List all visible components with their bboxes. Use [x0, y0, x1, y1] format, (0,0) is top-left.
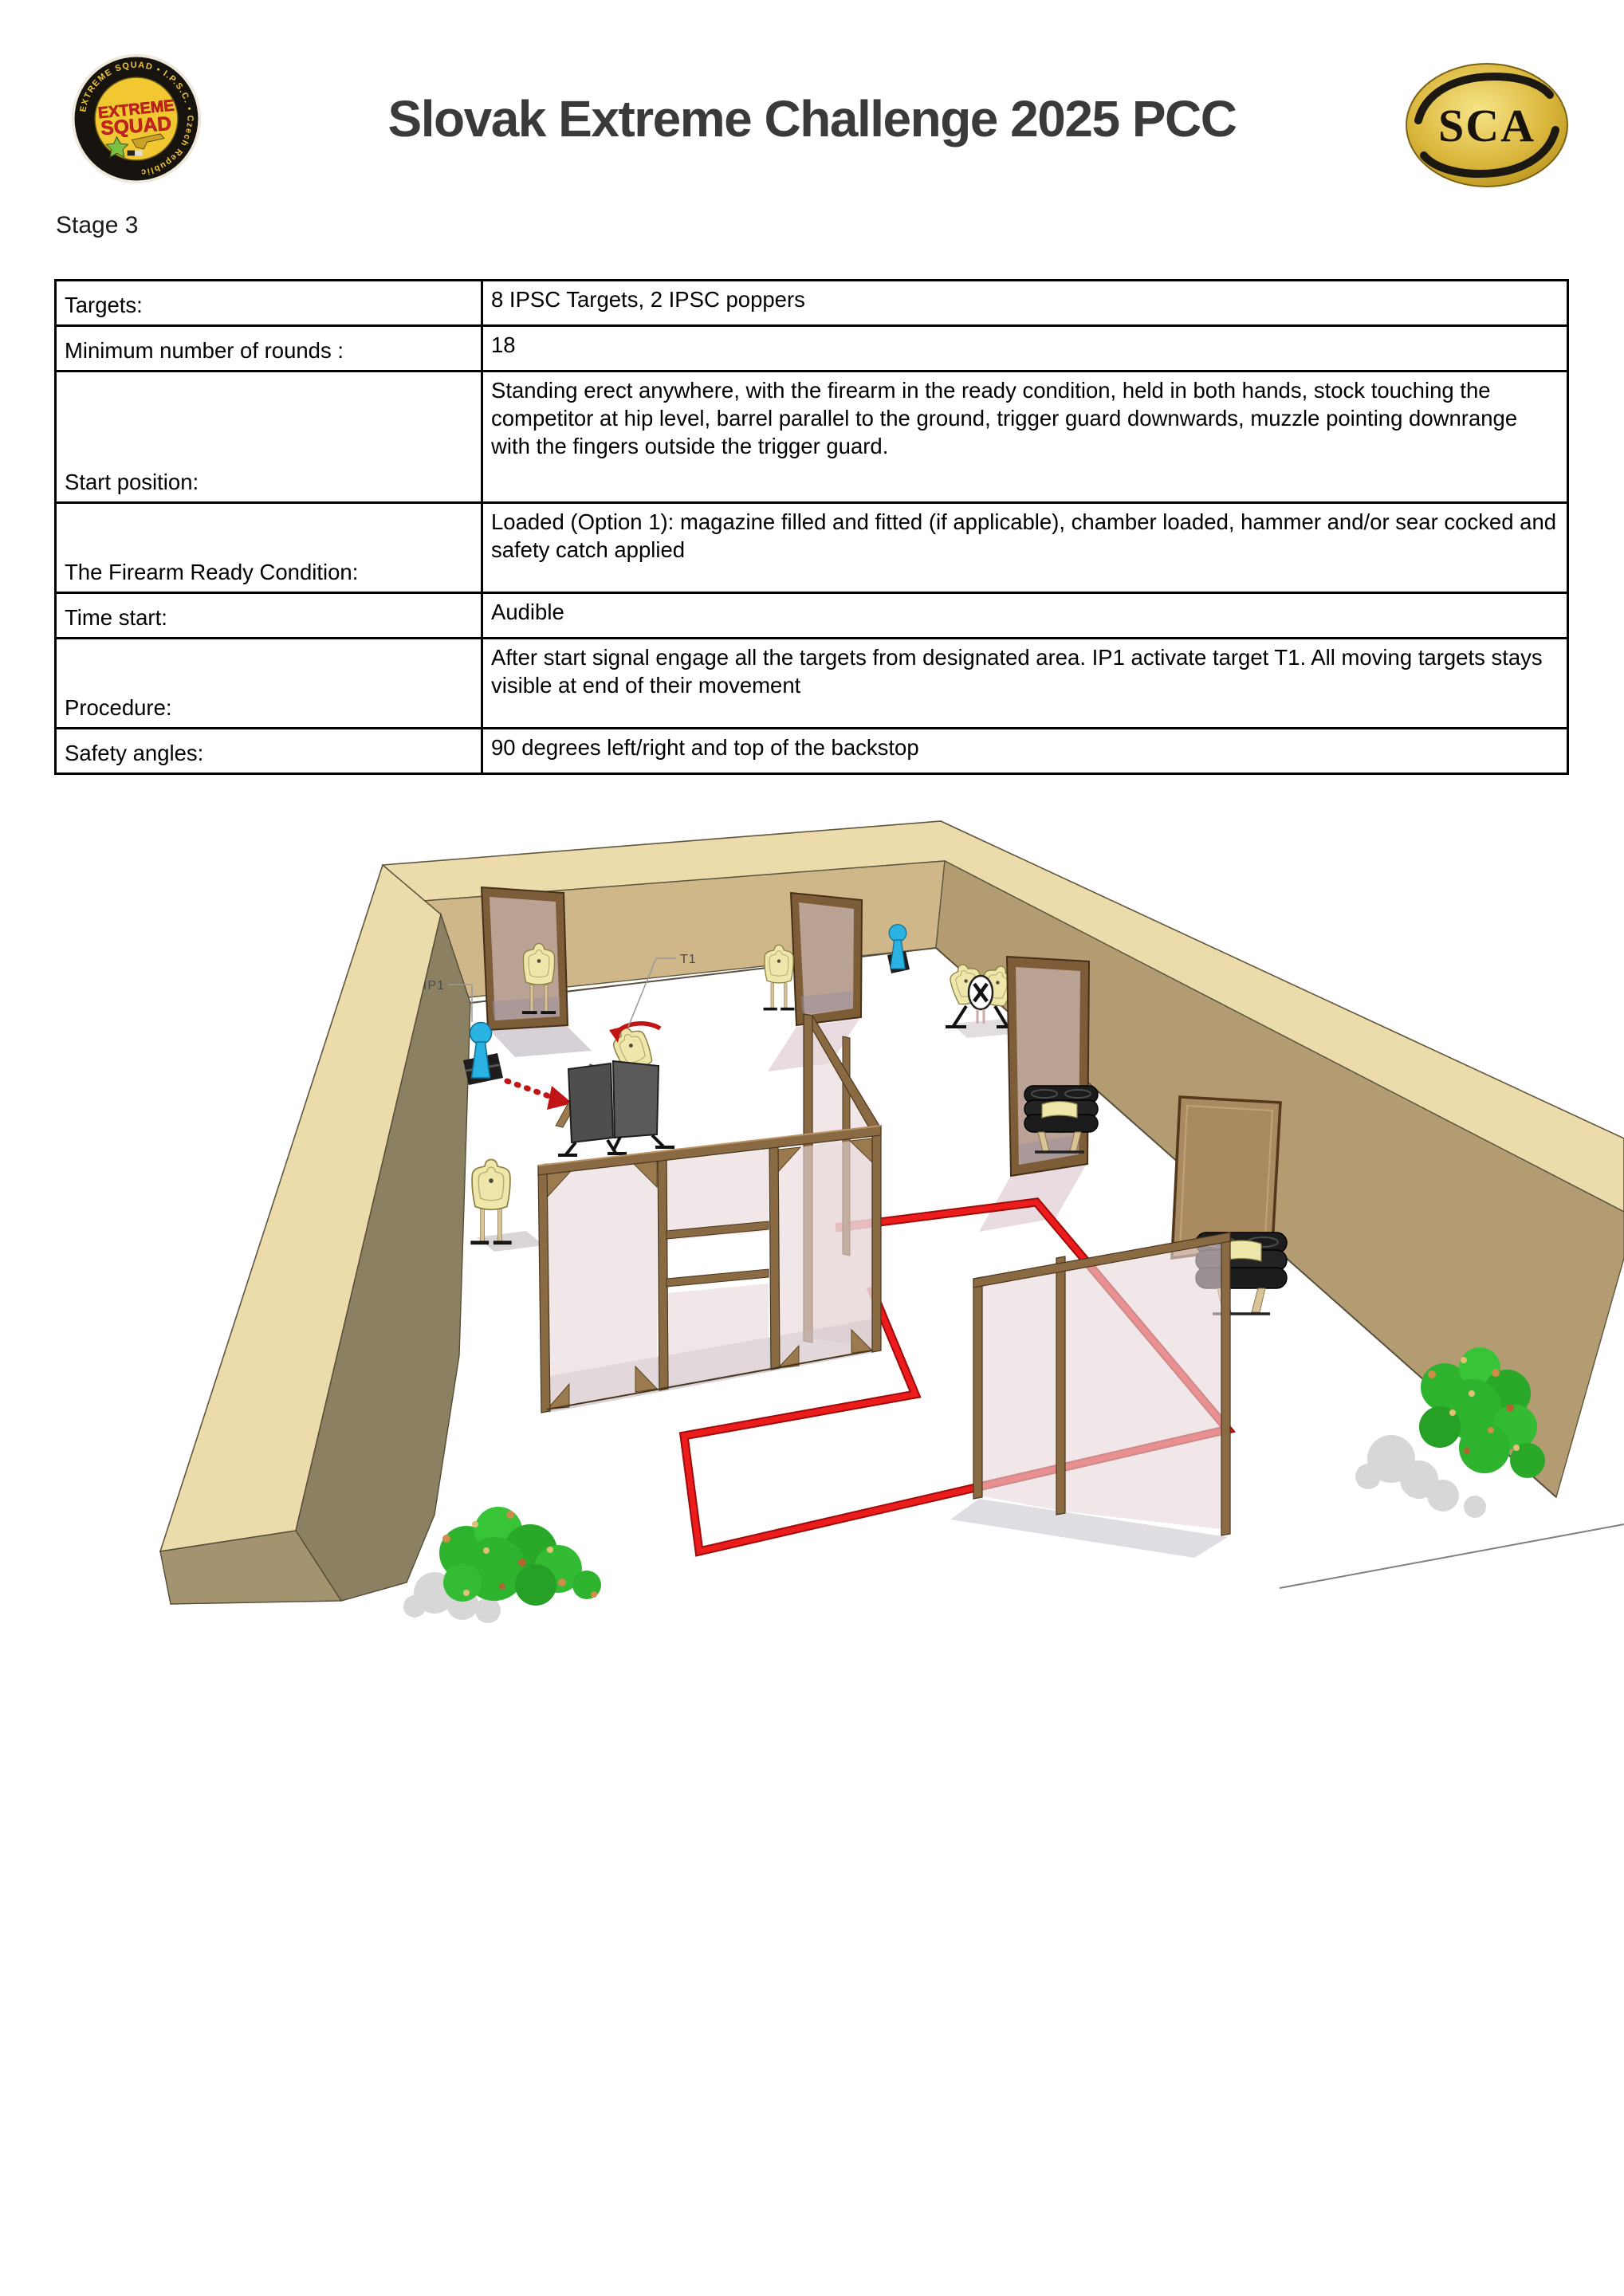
row-value: 8 IPSC Targets, 2 IPSC poppers: [482, 281, 1568, 326]
ground-edge-line: [1280, 1524, 1624, 1588]
badge-check-dark: [128, 151, 135, 156]
extreme-squad-logo: EXTREME SQUAD • I.P.S.C. • Czech Republi…: [69, 51, 204, 187]
wood-post: [769, 1140, 780, 1370]
flower-dot: [463, 1590, 470, 1596]
stage-diagram: IP1 T1: [0, 804, 1624, 1736]
row-value: After start signal engage all the target…: [482, 639, 1568, 729]
wood-post: [973, 1277, 982, 1499]
target-left-standalone: [470, 1160, 511, 1245]
t1-label: T1: [680, 953, 697, 966]
bush-right: [1355, 1347, 1545, 1518]
row-value: 90 degrees left/right and top of the bac…: [482, 729, 1568, 774]
row-label: The Firearm Ready Condition:: [56, 503, 482, 593]
stage-label: Stage 3: [56, 212, 138, 239]
bush-bottom-left: [403, 1507, 601, 1623]
barricade-panel-left: [568, 1063, 613, 1142]
sca-logo-icon: SCA: [1402, 61, 1572, 190]
table-row: Safety angles: 90 degrees left/right and…: [56, 729, 1568, 774]
window-rail: [667, 1269, 769, 1287]
flower-dot: [1449, 1409, 1456, 1416]
mesh-panel: [978, 1264, 1056, 1510]
row-value: Standing erect anywhere, with the firear…: [482, 372, 1568, 503]
door-frame-mesh: [1016, 967, 1080, 1165]
bush-foliage: [439, 1507, 601, 1606]
wood-post: [658, 1151, 668, 1390]
flower-dot: [472, 1521, 478, 1527]
row-value: Audible: [482, 593, 1568, 639]
barricade-leg: [652, 1135, 663, 1146]
mesh-panel: [667, 1284, 769, 1386]
table-row: Procedure: After start signal engage all…: [56, 639, 1568, 729]
barricade-leg: [566, 1142, 576, 1154]
row-label: Time start:: [56, 593, 482, 639]
extreme-squad-badge-icon: EXTREME SQUAD • I.P.S.C. • Czech Republi…: [69, 51, 204, 187]
barricade: [558, 1061, 674, 1155]
wood-post: [1056, 1256, 1065, 1515]
dashed-arrow-line: [507, 1081, 553, 1098]
table-row: The Firearm Ready Condition: Loaded (Opt…: [56, 503, 1568, 593]
target-front-frame2: [764, 945, 795, 1010]
stage-briefing-page: EXTREME SQUAD • I.P.S.C. • Czech Republi…: [0, 0, 1624, 2296]
shadow-blob: [1464, 1496, 1486, 1518]
flower-dot: [442, 1535, 450, 1543]
flower-dot: [483, 1547, 490, 1554]
barricade-leg: [614, 1137, 620, 1150]
target-stand: [764, 984, 795, 1011]
shadow-blob: [403, 1595, 426, 1618]
target-stand-leg: [1252, 1288, 1265, 1312]
wood-post: [872, 1126, 881, 1352]
range-3d-view: IP1 T1: [0, 804, 1624, 1736]
popper-icon: [470, 1023, 492, 1079]
flower-dot: [558, 1578, 566, 1586]
shadow-frame1: [490, 1025, 592, 1057]
row-value: 18: [482, 326, 1568, 372]
row-label: Safety angles:: [56, 729, 482, 774]
flower-dot: [547, 1547, 553, 1553]
shadow-blob: [1355, 1464, 1381, 1489]
flower-dot: [1461, 1357, 1467, 1363]
right-wall-structure: [950, 1233, 1230, 1558]
flower-dot: [1492, 1369, 1500, 1377]
flower-dot: [1506, 1404, 1514, 1412]
table-row: Start position: Standing erect anywhere,…: [56, 372, 1568, 503]
badge-check-light: [135, 151, 142, 156]
foliage-blob: [1459, 1422, 1510, 1473]
row-label: Minimum number of rounds :: [56, 326, 482, 372]
shadow-blob: [1427, 1480, 1459, 1512]
row-label: Targets:: [56, 281, 482, 326]
activation-arrow: [507, 1081, 572, 1110]
table-row: Minimum number of rounds : 18: [56, 326, 1568, 372]
flower-dot: [1469, 1390, 1475, 1397]
flower-dot: [499, 1583, 505, 1590]
shadow-blob: [475, 1598, 501, 1623]
row-value: Loaded (Option 1): magazine filled and f…: [482, 503, 1568, 593]
flower-dot: [591, 1591, 597, 1598]
row-label: Start position:: [56, 372, 482, 503]
mesh-panel: [778, 1138, 872, 1368]
ipsc-target-torso: [1042, 1102, 1077, 1119]
foliage-blob: [443, 1563, 482, 1602]
door-frame-2: [791, 893, 862, 1025]
flower-dot: [1513, 1445, 1520, 1451]
ipsc-target: [472, 1160, 510, 1210]
sca-label: SCA: [1438, 100, 1536, 151]
table-row: Time start: Audible: [56, 593, 1568, 639]
flower-dot: [506, 1511, 514, 1519]
ip1-label: IP1: [423, 979, 445, 993]
wood-post: [1221, 1233, 1230, 1535]
flower-dot: [1428, 1370, 1436, 1378]
barricade-panel-right: [613, 1061, 659, 1138]
foliage-blob: [515, 1564, 556, 1606]
flower-dot: [1488, 1427, 1494, 1433]
flower-dot: [1464, 1448, 1470, 1454]
flower-dot: [518, 1559, 526, 1567]
row-label: Procedure:: [56, 639, 482, 729]
sca-logo: SCA: [1402, 61, 1572, 190]
page-title: Slovak Extreme Challenge 2025 PCC: [388, 89, 1237, 148]
table-row: Targets: 8 IPSC Targets, 2 IPSC poppers: [56, 281, 1568, 326]
mesh-panel: [1065, 1240, 1221, 1529]
stage-briefing-table: Targets: 8 IPSC Targets, 2 IPSC poppers …: [54, 279, 1569, 775]
